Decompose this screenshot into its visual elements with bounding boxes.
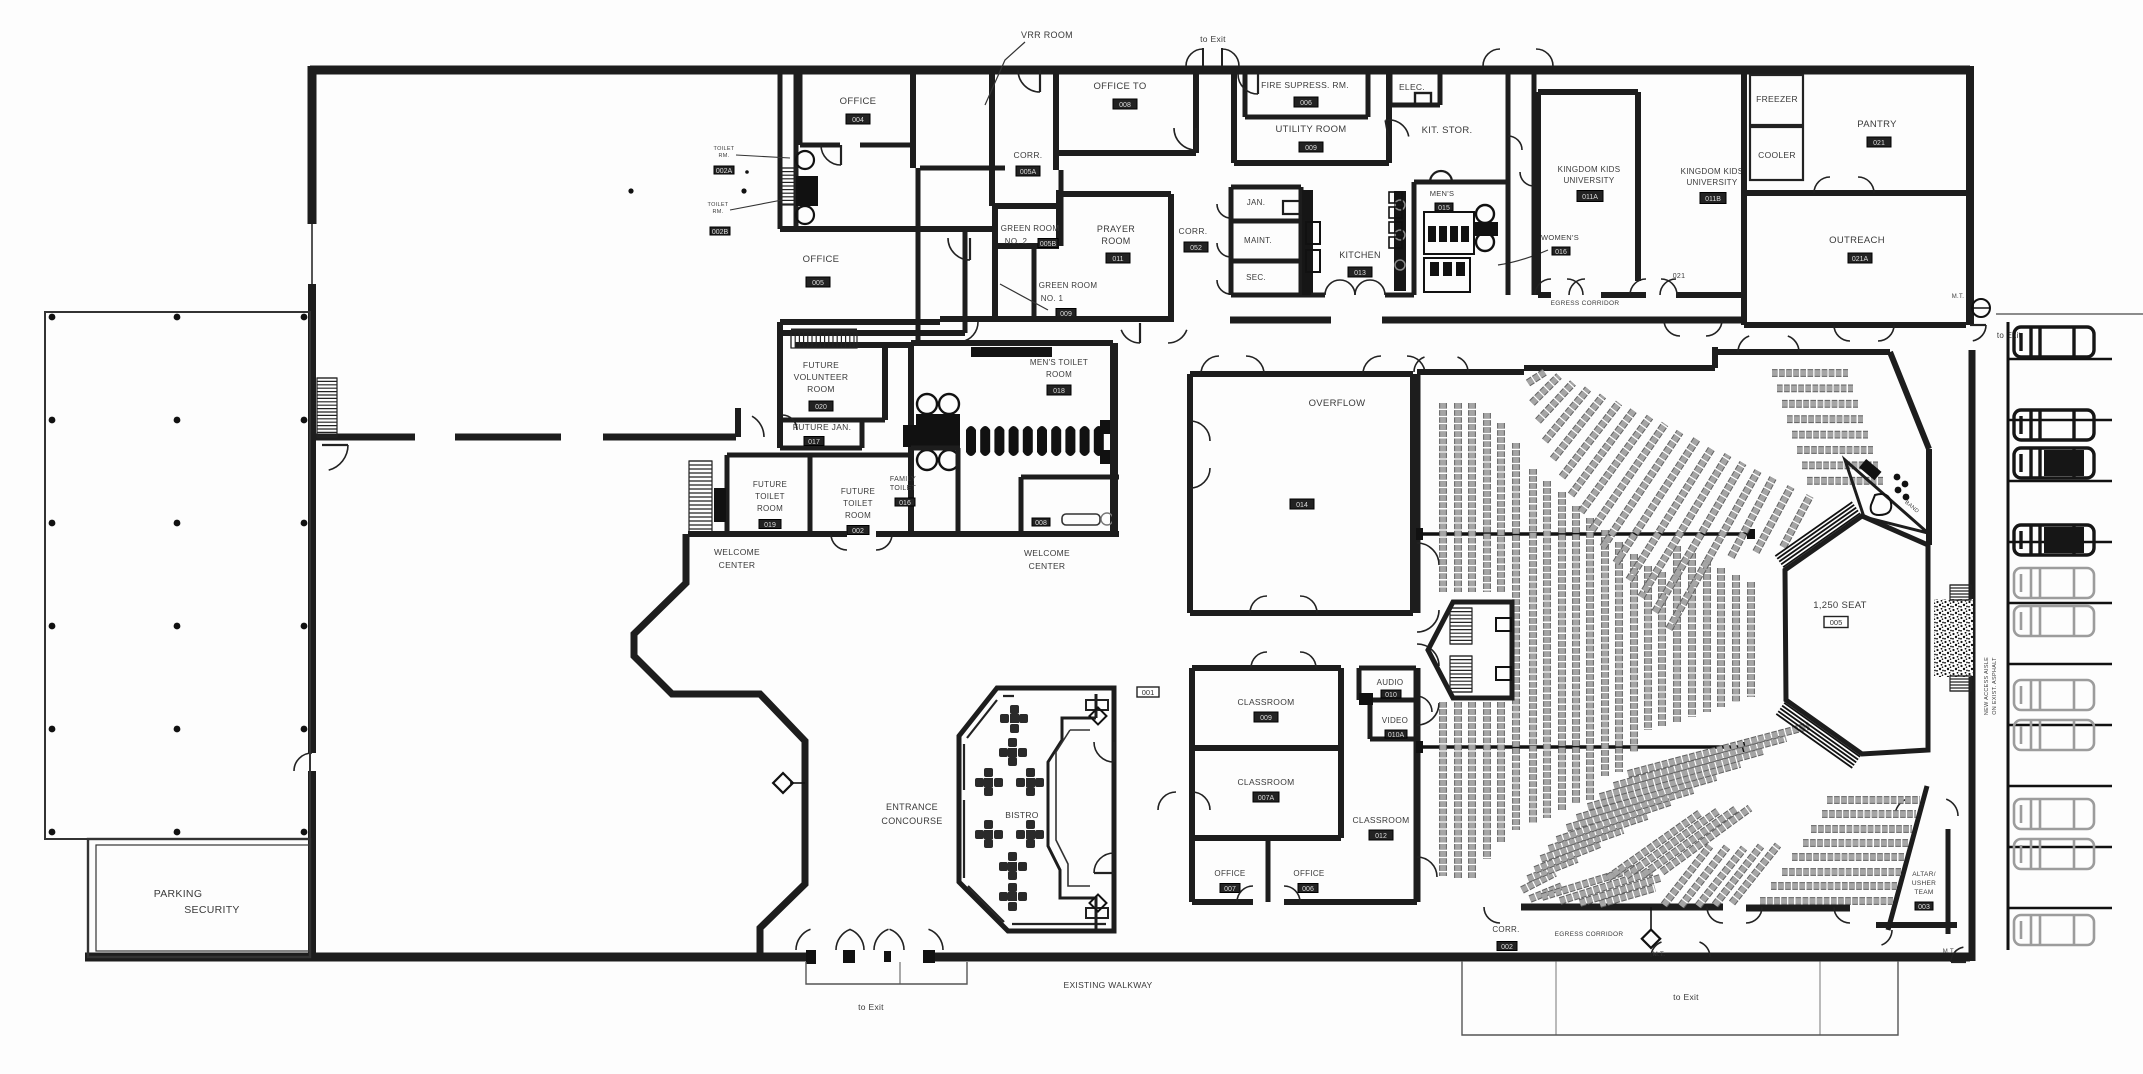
- svg-text:ON EXIST. ASPHALT: ON EXIST. ASPHALT: [1992, 657, 1998, 715]
- svg-text:018: 018: [1053, 388, 1065, 395]
- svg-text:013: 013: [1354, 270, 1366, 277]
- svg-text:to Exit: to Exit: [1200, 34, 1226, 44]
- svg-text:005B: 005B: [1040, 241, 1057, 248]
- svg-text:KINGDOM KIDS: KINGDOM KIDS: [1681, 167, 1744, 176]
- svg-text:009: 009: [1260, 715, 1272, 722]
- svg-text:COOLER: COOLER: [1758, 150, 1796, 160]
- svg-text:021: 021: [1873, 140, 1885, 147]
- svg-text:RM.: RM.: [713, 209, 724, 215]
- svg-text:015: 015: [1438, 205, 1450, 212]
- svg-text:RM.: RM.: [719, 153, 730, 159]
- svg-text:006: 006: [1300, 100, 1312, 107]
- svg-text:CENTER: CENTER: [719, 560, 756, 570]
- svg-text:001: 001: [1142, 688, 1155, 697]
- svg-text:002B: 002B: [712, 229, 729, 236]
- svg-text:KIT. STOR.: KIT. STOR.: [1422, 125, 1473, 136]
- svg-text:PARKING: PARKING: [154, 888, 203, 900]
- svg-text:MEN'S: MEN'S: [1430, 189, 1455, 198]
- svg-text:011B: 011B: [1705, 196, 1721, 203]
- svg-text:OFFICE: OFFICE: [1214, 869, 1245, 878]
- svg-text:TOILET: TOILET: [843, 499, 873, 508]
- svg-text:CORR.: CORR.: [1179, 226, 1208, 236]
- svg-text:FAMILY: FAMILY: [890, 476, 916, 483]
- svg-text:008: 008: [1035, 520, 1047, 527]
- svg-text:M.T.: M.T.: [1943, 949, 1956, 955]
- svg-text:002: 002: [1501, 944, 1513, 951]
- svg-text:BISTRO: BISTRO: [1005, 810, 1039, 820]
- svg-text:GREEN ROOM: GREEN ROOM: [1001, 224, 1060, 233]
- svg-text:OFFICE TO: OFFICE TO: [1093, 81, 1146, 92]
- svg-text:OFFICE: OFFICE: [840, 96, 877, 107]
- svg-text:TEAM: TEAM: [1914, 889, 1933, 896]
- svg-text:OFFICE: OFFICE: [803, 254, 840, 265]
- svg-text:004: 004: [852, 117, 864, 124]
- svg-text:FUTURE: FUTURE: [841, 487, 875, 496]
- svg-text:010: 010: [1385, 692, 1397, 699]
- svg-text:VRR ROOM: VRR ROOM: [1021, 30, 1073, 40]
- svg-text:EXISTING WALKWAY: EXISTING WALKWAY: [1063, 980, 1152, 990]
- svg-text:014: 014: [1296, 502, 1308, 509]
- svg-text:CORR.: CORR.: [1014, 150, 1043, 160]
- svg-text:011A: 011A: [1582, 194, 1598, 201]
- svg-text:006: 006: [1302, 886, 1314, 893]
- svg-text:FUTURE: FUTURE: [753, 480, 787, 489]
- svg-text:009: 009: [1305, 145, 1317, 152]
- svg-text:FUTURE: FUTURE: [803, 360, 839, 370]
- svg-text:002A: 002A: [716, 168, 733, 175]
- svg-text:SEC.: SEC.: [1246, 273, 1266, 282]
- svg-text:CLASSROOM: CLASSROOM: [1237, 777, 1294, 787]
- svg-text:M.T.: M.T.: [1653, 952, 1666, 958]
- svg-text:021: 021: [1673, 273, 1686, 280]
- svg-text:M.T.: M.T.: [1952, 294, 1965, 300]
- svg-text:MEN'S TOILET: MEN'S TOILET: [1030, 358, 1088, 367]
- svg-text:020: 020: [815, 404, 827, 411]
- svg-text:WELCOME: WELCOME: [1024, 548, 1070, 558]
- svg-text:EGRESS CORRIDOR: EGRESS CORRIDOR: [1555, 931, 1624, 938]
- svg-text:WELCOME: WELCOME: [714, 547, 760, 557]
- svg-text:005A: 005A: [1020, 169, 1037, 176]
- svg-text:016: 016: [1555, 249, 1567, 256]
- svg-text:OFFICE: OFFICE: [1293, 869, 1324, 878]
- svg-text:002: 002: [852, 528, 864, 535]
- svg-text:TOILET: TOILET: [890, 485, 917, 492]
- svg-text:FREEZER: FREEZER: [1756, 94, 1798, 104]
- svg-text:CONCOURSE: CONCOURSE: [881, 816, 942, 826]
- svg-text:WOMEN'S: WOMEN'S: [1541, 233, 1579, 242]
- svg-text:FUTURE JAN.: FUTURE JAN.: [793, 422, 852, 432]
- svg-text:TOILET: TOILET: [755, 492, 785, 501]
- svg-text:PANTRY: PANTRY: [1857, 119, 1897, 130]
- svg-text:011: 011: [1112, 256, 1123, 263]
- svg-text:008: 008: [1119, 102, 1131, 109]
- svg-text:010A: 010A: [1388, 732, 1405, 739]
- svg-text:OUTREACH: OUTREACH: [1829, 235, 1885, 246]
- svg-text:CORR.: CORR.: [1492, 925, 1519, 934]
- svg-text:NO. 2: NO. 2: [1005, 237, 1028, 246]
- svg-text:003: 003: [1918, 904, 1930, 911]
- svg-text:ELEC.: ELEC.: [1399, 82, 1425, 92]
- svg-text:SECURITY: SECURITY: [184, 904, 240, 916]
- svg-text:005: 005: [1830, 618, 1843, 627]
- svg-text:OVERFLOW: OVERFLOW: [1309, 398, 1366, 409]
- svg-text:ROOM: ROOM: [807, 384, 835, 394]
- svg-text:KINGDOM KIDS: KINGDOM KIDS: [1558, 165, 1621, 174]
- svg-text:USHER: USHER: [1912, 880, 1936, 887]
- svg-text:019: 019: [764, 522, 776, 529]
- svg-text:1,250 SEAT: 1,250 SEAT: [1813, 600, 1867, 611]
- svg-text:UNIVERSITY: UNIVERSITY: [1686, 178, 1737, 187]
- svg-text:EGRESS CORRIDOR: EGRESS CORRIDOR: [1551, 300, 1620, 307]
- svg-text:ROOM: ROOM: [845, 511, 871, 520]
- svg-text:NEW ACCESS AISLE: NEW ACCESS AISLE: [1984, 657, 1990, 715]
- svg-text:VIDEO: VIDEO: [1382, 716, 1408, 725]
- svg-text:KITCHEN: KITCHEN: [1339, 250, 1381, 260]
- svg-text:to Exit: to Exit: [858, 1002, 884, 1012]
- svg-text:012: 012: [1375, 833, 1387, 840]
- svg-text:CLASSROOM: CLASSROOM: [1237, 697, 1294, 707]
- svg-text:VOLUNTEER: VOLUNTEER: [794, 372, 849, 382]
- svg-text:TOILET: TOILET: [708, 202, 729, 208]
- svg-text:UTILITY ROOM: UTILITY ROOM: [1276, 124, 1347, 135]
- svg-text:NO. 1: NO. 1: [1041, 294, 1064, 303]
- svg-text:ENTRANCE: ENTRANCE: [886, 802, 938, 812]
- svg-text:AUDIO: AUDIO: [1377, 678, 1404, 687]
- svg-text:ROOM: ROOM: [1101, 236, 1130, 246]
- svg-text:007: 007: [1224, 886, 1236, 893]
- svg-text:ROOM: ROOM: [757, 504, 783, 513]
- svg-text:MAINT.: MAINT.: [1244, 236, 1272, 245]
- svg-text:007A: 007A: [1258, 795, 1275, 802]
- svg-text:ROOM: ROOM: [1046, 370, 1072, 379]
- svg-text:UNIVERSITY: UNIVERSITY: [1563, 176, 1614, 185]
- svg-text:005: 005: [812, 280, 824, 287]
- svg-text:ALTAR/: ALTAR/: [1912, 871, 1936, 878]
- svg-text:GREEN ROOM: GREEN ROOM: [1039, 281, 1098, 290]
- svg-text:052: 052: [1190, 245, 1202, 252]
- svg-text:CENTER: CENTER: [1029, 561, 1066, 571]
- svg-text:CLASSROOM: CLASSROOM: [1352, 815, 1409, 825]
- svg-text:021A: 021A: [1852, 256, 1869, 263]
- svg-text:to Exit: to Exit: [1673, 992, 1699, 1002]
- svg-text:PRAYER: PRAYER: [1097, 224, 1135, 234]
- svg-text:JAN.: JAN.: [1247, 198, 1266, 207]
- svg-text:TOILET: TOILET: [714, 146, 735, 152]
- svg-text:016: 016: [899, 500, 911, 507]
- svg-text:FIRE SUPRESS. RM.: FIRE SUPRESS. RM.: [1261, 80, 1349, 90]
- svg-text:017: 017: [808, 439, 820, 446]
